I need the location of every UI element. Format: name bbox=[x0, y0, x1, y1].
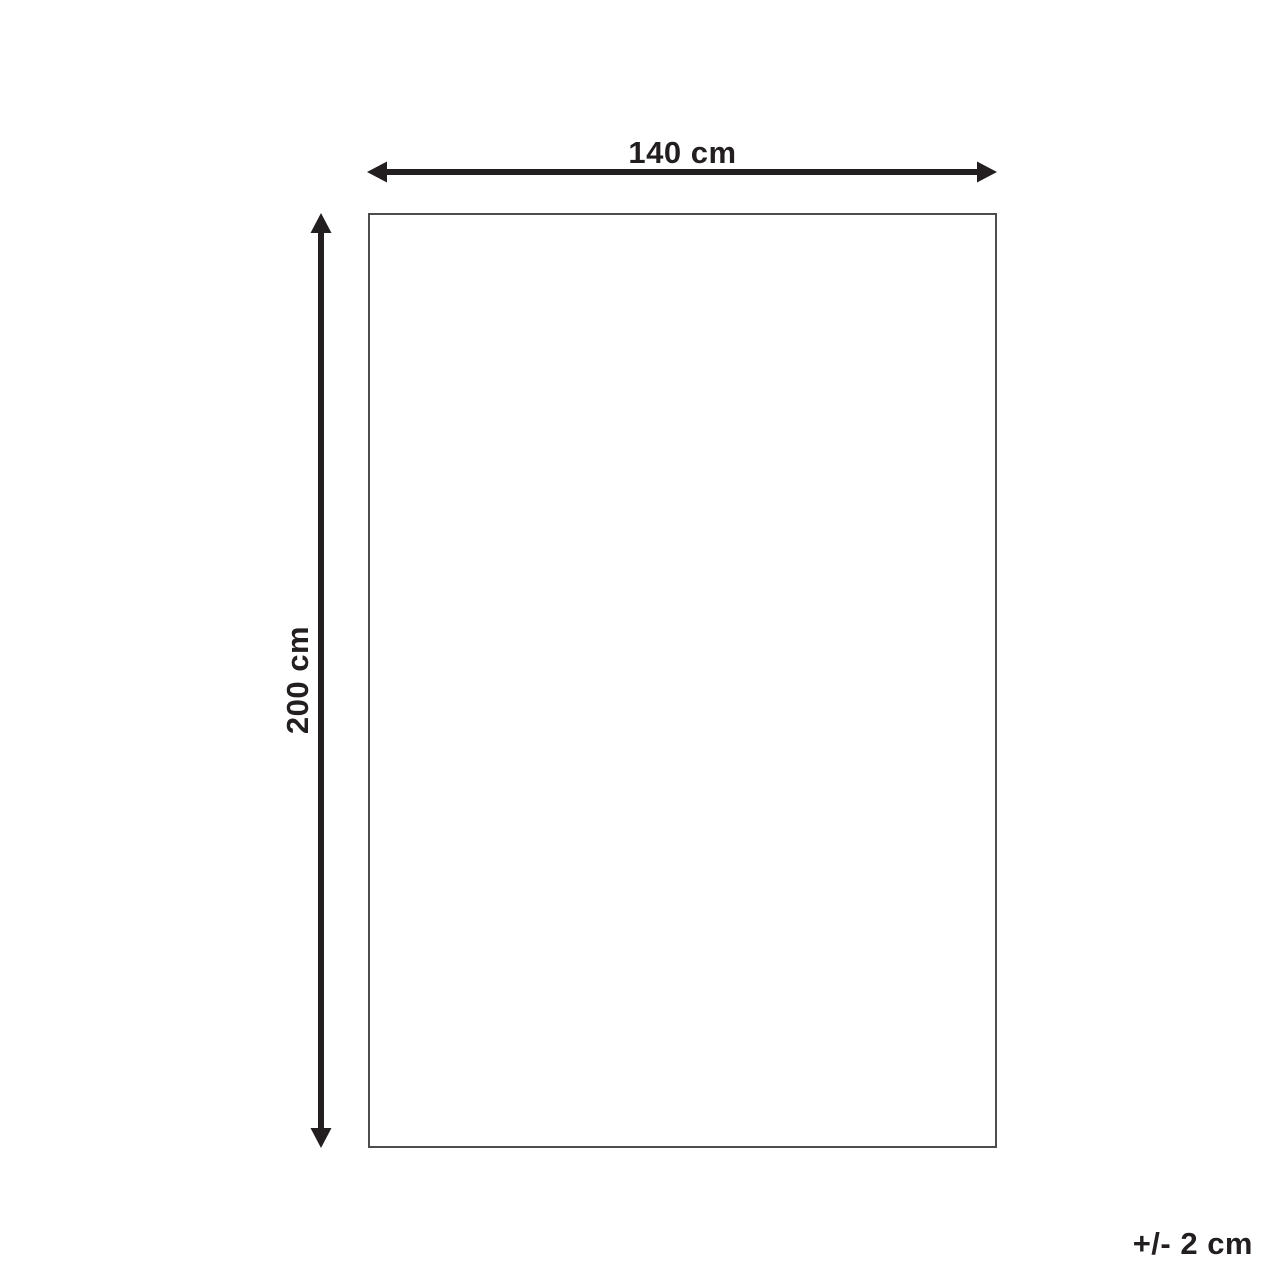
height-dimension-label: 200 cm bbox=[278, 580, 318, 780]
tolerance-label: +/- 2 cm bbox=[1133, 1226, 1253, 1262]
product-outline-rect bbox=[368, 213, 997, 1148]
dimension-diagram: 140 cm 200 cm +/- 2 cm bbox=[0, 0, 1280, 1280]
width-dimension-label: 140 cm bbox=[368, 135, 997, 171]
